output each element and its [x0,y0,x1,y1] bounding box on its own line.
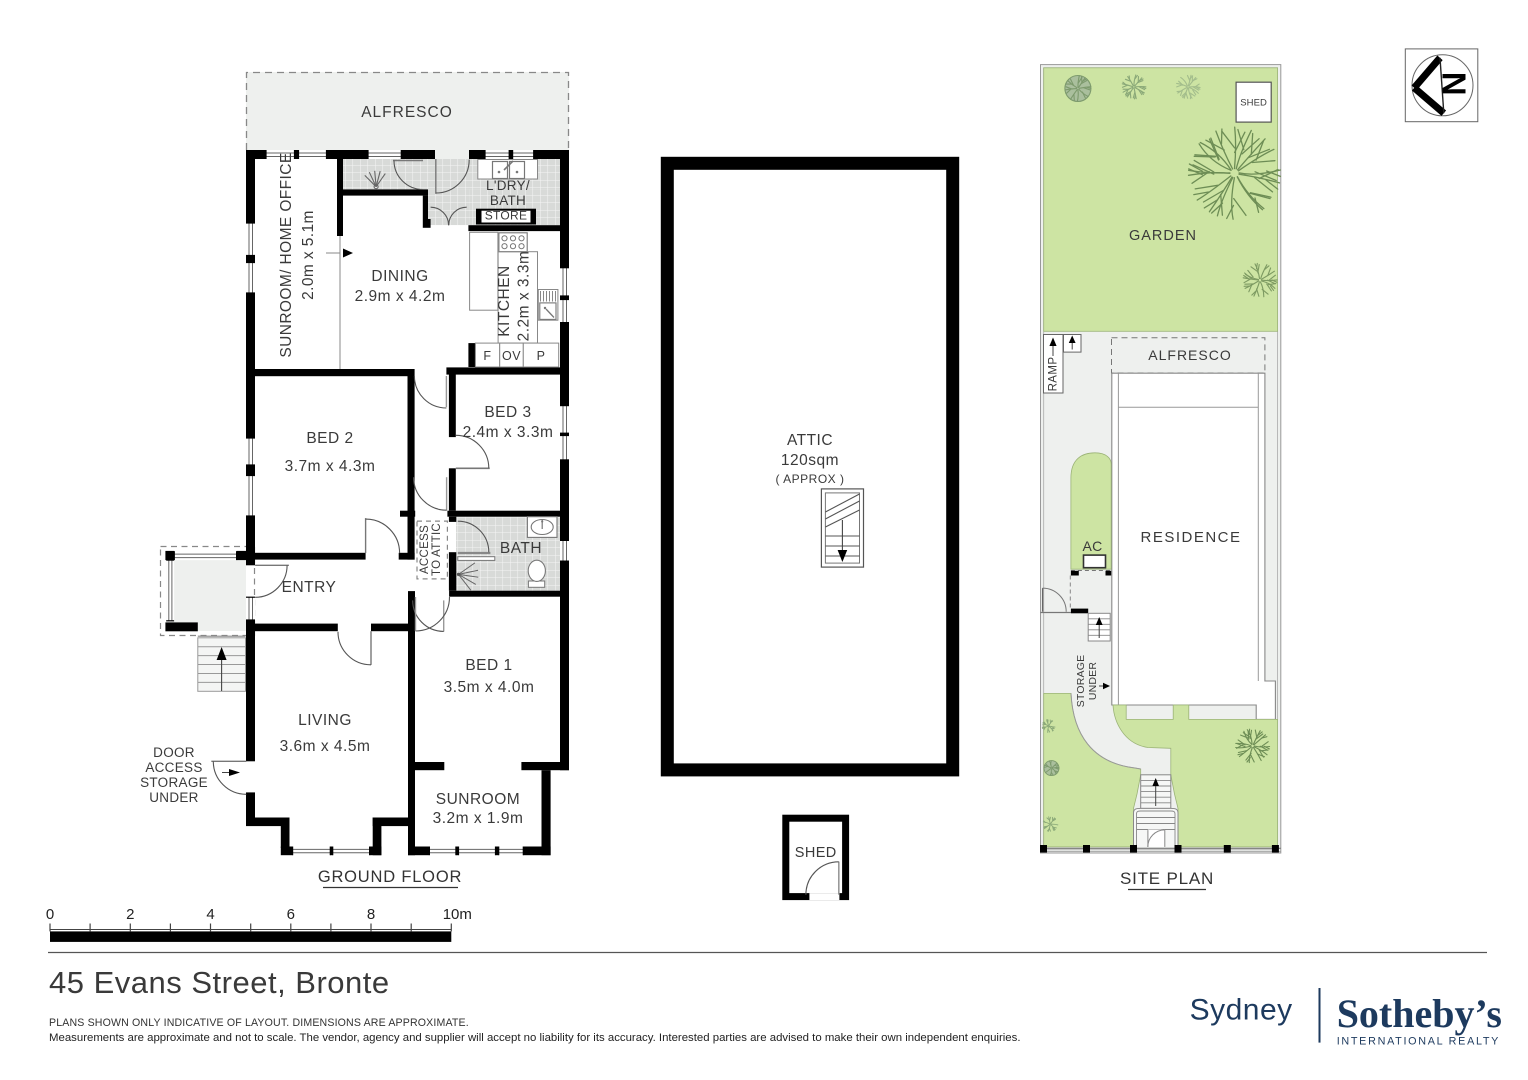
svg-text:Sydney: Sydney [1190,994,1293,1027]
svg-text:ATTIC: ATTIC [787,432,833,449]
svg-text:( APPROX ): ( APPROX ) [775,472,844,486]
svg-text:ALFRESCO: ALFRESCO [1148,347,1231,363]
svg-text:2.9m x 4.2m: 2.9m x 4.2m [355,288,446,305]
svg-text:KITCHEN: KITCHEN [496,265,513,337]
svg-text:8: 8 [367,906,375,923]
svg-text:RAMP: RAMP [1048,357,1060,392]
svg-text:BED 1: BED 1 [465,657,512,674]
svg-text:10m: 10m [443,906,472,923]
svg-text:UNDER: UNDER [149,790,199,805]
svg-text:BATH: BATH [500,540,542,557]
svg-text:BED 2: BED 2 [306,430,353,447]
svg-text:LIVING: LIVING [298,712,352,729]
svg-text:BATH: BATH [490,193,526,208]
svg-text:SUNROOM: SUNROOM [436,791,520,808]
svg-text:RESIDENCE: RESIDENCE [1140,529,1241,546]
svg-text:OV: OV [502,349,521,363]
svg-text:2: 2 [126,906,134,923]
svg-text:DINING: DINING [371,268,428,285]
svg-text:STORE: STORE [485,209,528,223]
svg-text:2.0m x 5.1m: 2.0m x 5.1m [300,210,317,300]
svg-text:INTERNATIONAL REALTY: INTERNATIONAL REALTY [1337,1036,1500,1048]
svg-text:GARDEN: GARDEN [1129,228,1197,244]
svg-text:SHED: SHED [1240,98,1267,109]
svg-text:GROUND FLOOR: GROUND FLOOR [318,868,462,886]
svg-text:TO ATTIC: TO ATTIC [431,523,443,576]
svg-text:ENTRY: ENTRY [282,579,337,596]
svg-text:120sqm: 120sqm [781,452,839,469]
svg-text:UNDER: UNDER [1087,662,1099,701]
svg-text:STORAGE: STORAGE [1075,655,1087,708]
svg-text:4: 4 [206,906,214,923]
svg-text:3.2m x 1.9m: 3.2m x 1.9m [433,810,524,827]
svg-text:6: 6 [287,906,295,923]
svg-text:PLANS SHOWN ONLY INDICATIVE OF: PLANS SHOWN ONLY INDICATIVE OF LAYOUT. D… [49,1017,469,1029]
svg-text:SHED: SHED [795,845,837,861]
svg-text:Measurements are approximate a: Measurements are approximate and not to … [49,1032,1020,1044]
svg-text:3.6m x 4.5m: 3.6m x 4.5m [280,738,371,755]
svg-text:SITE PLAN: SITE PLAN [1120,869,1214,888]
svg-text:L'DRY/: L'DRY/ [486,178,530,193]
svg-text:P: P [537,349,546,363]
svg-text:Sotheby’s: Sotheby’s [1337,991,1502,1036]
svg-text:BED 3: BED 3 [484,404,531,421]
svg-text:3.5m x 4.0m: 3.5m x 4.0m [444,679,535,696]
svg-text:3.7m x 4.3m: 3.7m x 4.3m [285,458,376,475]
svg-text:F: F [483,349,491,363]
svg-text:2.4m x 3.3m: 2.4m x 3.3m [463,424,554,441]
svg-text:STORAGE: STORAGE [140,775,208,790]
svg-text:DOOR: DOOR [153,745,195,760]
svg-text:45 Evans Street, Bronte: 45 Evans Street, Bronte [49,965,390,1000]
svg-text:ACCESS: ACCESS [419,525,431,574]
svg-text:ACCESS: ACCESS [145,760,202,775]
svg-text:N: N [1436,71,1473,95]
svg-text:2.2m x 3.3m: 2.2m x 3.3m [516,251,533,342]
svg-text:0: 0 [46,906,54,923]
svg-text:AC: AC [1082,538,1102,554]
svg-text:ALFRESCO: ALFRESCO [361,104,453,121]
svg-text:SUNROOM/ HOME OFFICE: SUNROOM/ HOME OFFICE [278,152,295,357]
